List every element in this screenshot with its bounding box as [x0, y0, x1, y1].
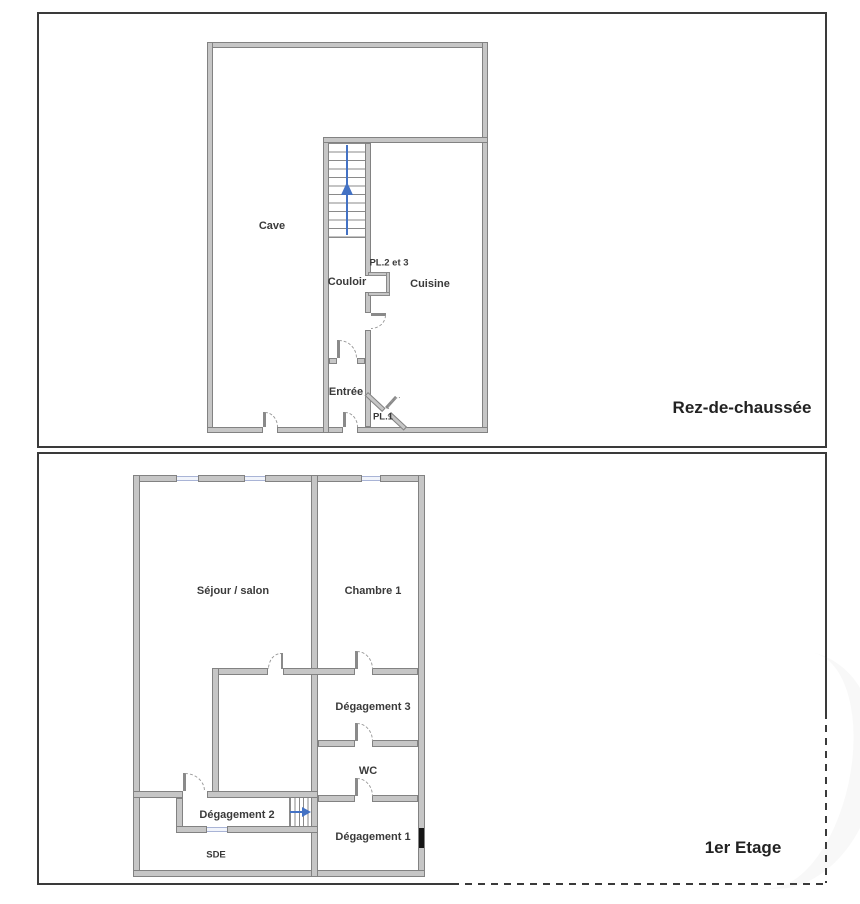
window [245, 476, 265, 481]
wall [318, 795, 355, 802]
stair-right-arrow-icon [302, 807, 311, 817]
room-label-pl1: PL.1 [373, 412, 393, 423]
wall [329, 358, 337, 364]
room-label-cave: Cave [259, 220, 285, 232]
room-label-couloir: Couloir [328, 276, 367, 288]
wall [207, 42, 488, 48]
wall [207, 791, 318, 798]
floor-plan-page: Cave Couloir PL.2 et 3 Cuisine Entrée PL… [0, 0, 860, 904]
wall [207, 42, 213, 433]
wall [277, 427, 343, 433]
wall [227, 826, 318, 833]
wall [207, 427, 263, 433]
wall [357, 358, 365, 364]
wall [357, 427, 488, 433]
wall [372, 795, 418, 802]
wall [482, 42, 488, 433]
wall [133, 791, 183, 798]
window [362, 476, 380, 481]
wall [212, 668, 219, 798]
room-label-entree: Entrée [329, 386, 363, 398]
wall [365, 143, 371, 276]
wall [198, 475, 245, 482]
room-label-degagement1: Dégagement 1 [335, 831, 410, 843]
wall-marker [419, 828, 424, 848]
wall [176, 826, 207, 833]
wall [311, 475, 318, 877]
wall [133, 870, 425, 877]
floor-title-rdc: Rez-de-chaussée [673, 398, 812, 418]
wall [372, 668, 418, 675]
room-label-pl23: PL.2 et 3 [369, 258, 408, 269]
wall [318, 740, 355, 747]
wall [283, 668, 355, 675]
wall [133, 475, 140, 877]
stair-up-arrow-icon [341, 182, 353, 195]
window [177, 476, 198, 481]
room-label-chambre1: Chambre 1 [345, 585, 402, 597]
wall [372, 740, 418, 747]
room-label-cuisine: Cuisine [410, 278, 450, 290]
room-label-degagement3: Dégagement 3 [335, 701, 410, 713]
wall [418, 475, 425, 877]
room-label-wc: WC [359, 765, 377, 777]
room-label-sde: SDE [206, 850, 226, 861]
wall [212, 668, 268, 675]
closet-wall [368, 292, 390, 296]
room-label-sejour: Séjour / salon [197, 585, 269, 597]
room-label-degagement2: Dégagement 2 [199, 809, 274, 821]
wall [365, 330, 371, 427]
window [207, 827, 227, 832]
panel-rez-de-chaussee [37, 12, 827, 448]
